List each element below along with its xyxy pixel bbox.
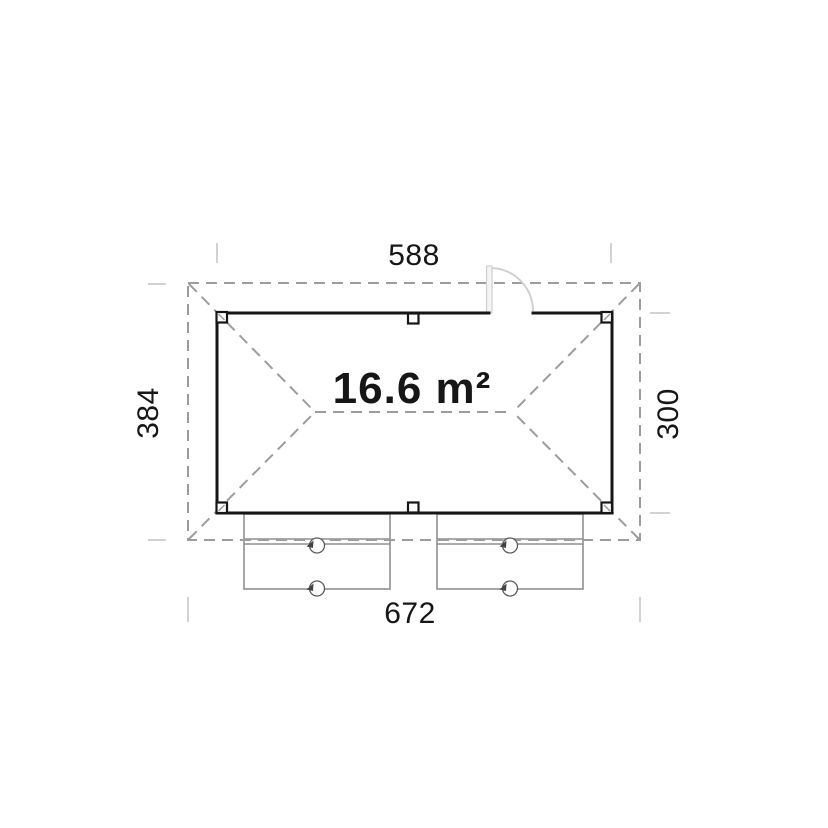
dimension-bottom-label: 672 — [384, 597, 436, 630]
post-top-center — [408, 314, 419, 324]
door-swing-arc — [492, 268, 533, 311]
post-bottom-center — [408, 503, 419, 513]
door-leaf — [487, 266, 493, 313]
hip-diagonal-top-left — [189, 284, 315, 412]
floor-plan-page: 588 384 300 672 16.6 m² — [0, 0, 828, 828]
dimension-top-label: 588 — [388, 239, 440, 272]
area-label: 16.6 m² — [333, 364, 492, 413]
dimension-left-label: 384 — [132, 387, 165, 439]
dimension-right-label: 300 — [652, 388, 685, 440]
extension-ticks — [148, 243, 670, 622]
floor-plan-canvas: 588 384 300 672 16.6 m² — [0, 0, 828, 828]
door — [487, 266, 534, 313]
